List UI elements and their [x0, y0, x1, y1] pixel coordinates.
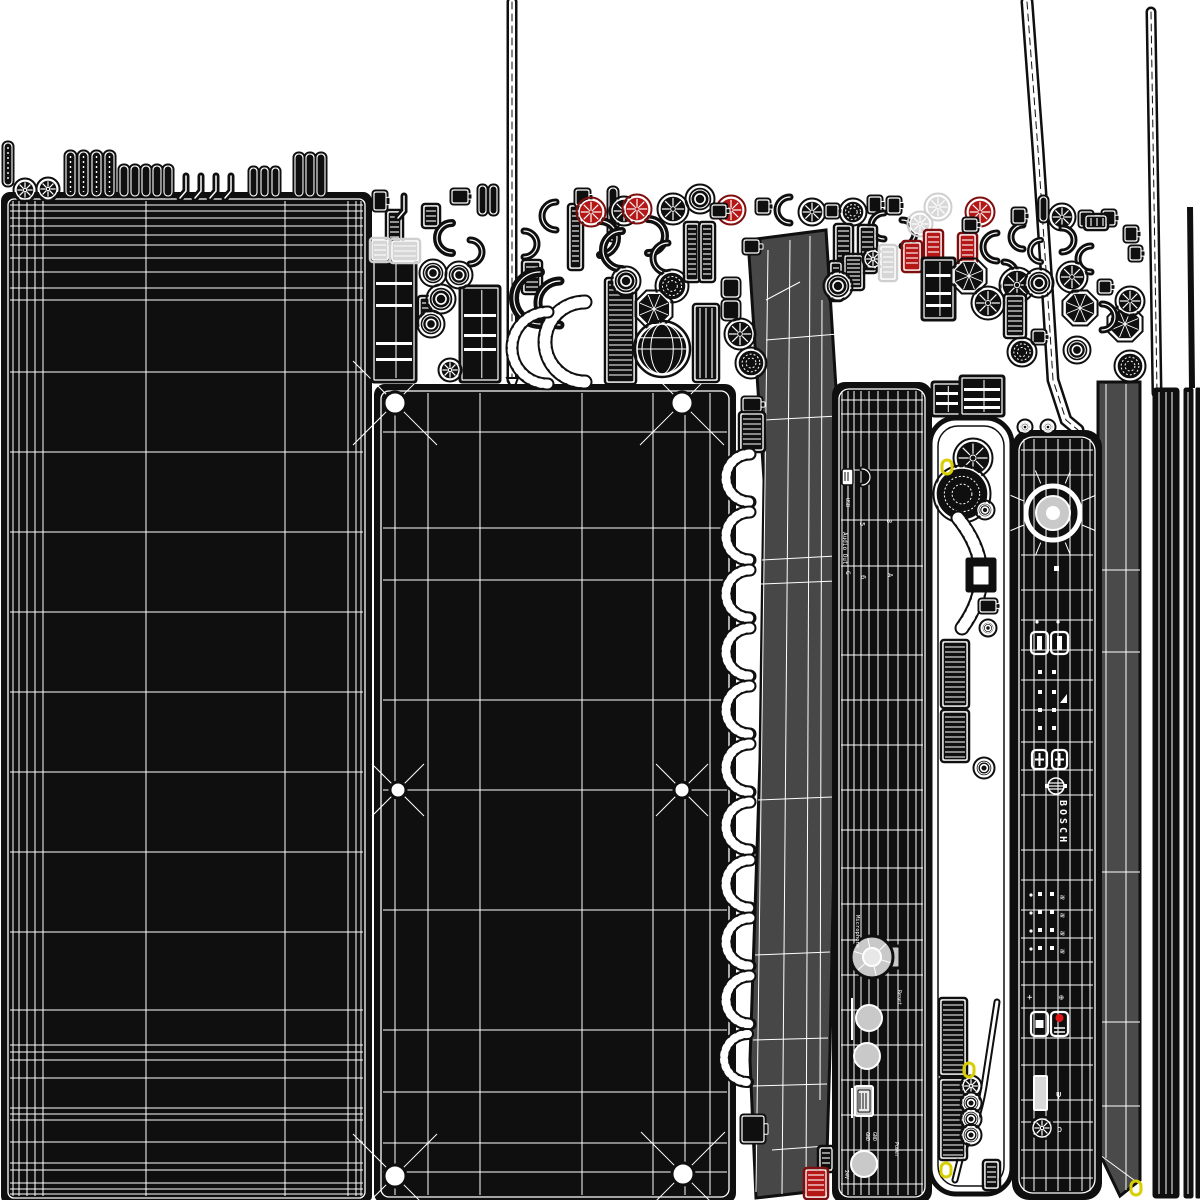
uv-curve: [542, 202, 556, 230]
icon-square: [1038, 670, 1042, 674]
uv-island: [964, 406, 1000, 409]
uv-island: [918, 222, 922, 226]
uv-strip: [261, 168, 268, 196]
uv-island: [448, 368, 451, 371]
uv-island: [1141, 251, 1145, 256]
icon-square: [1050, 892, 1054, 896]
icon-dot: [1029, 947, 1032, 950]
uv-island: [981, 765, 988, 772]
label-text: ⊕: [1059, 993, 1064, 1002]
uv-island: [926, 292, 951, 295]
uv-strip: [120, 166, 128, 196]
knob-center: [1046, 506, 1060, 520]
label-text: ≋: [1060, 893, 1065, 902]
uv-ladder: [926, 232, 941, 259]
uv-clip: [980, 600, 996, 612]
icon-square: [1052, 726, 1056, 730]
uv-clip: [1033, 331, 1045, 343]
uv-island: [671, 207, 676, 212]
uv-island: [985, 625, 990, 630]
uv-clip: [452, 190, 468, 203]
icon-dot: [1029, 929, 1032, 932]
label-text: 5: [858, 522, 866, 526]
uv-island: [464, 314, 496, 317]
uv-strip: [1040, 197, 1047, 221]
uv-island: [376, 342, 412, 345]
icon-square: [1038, 946, 1042, 950]
uv-strip: [131, 166, 139, 196]
panel-hole: [671, 392, 693, 414]
uv-island: [1060, 215, 1064, 219]
uv-island: [1034, 278, 1044, 288]
label-text: ≋: [1060, 929, 1065, 938]
uv-panel: [1098, 382, 1140, 1196]
uv-island: [1036, 1020, 1044, 1028]
uv-strip: [272, 168, 279, 196]
uv-island: [936, 205, 940, 209]
uv-ladder: [943, 712, 967, 760]
uv-strip: [295, 154, 303, 196]
panel-hole: [674, 782, 690, 798]
uv-island: [900, 203, 904, 209]
uv-island: [1128, 299, 1132, 303]
label-text: Microphone: [854, 915, 860, 948]
uv-island: [726, 512, 750, 560]
label-text: ψ: [1056, 1090, 1061, 1100]
uv-island: [982, 507, 988, 513]
label-text: BOSCH: [1057, 800, 1068, 845]
panel-hole: [390, 782, 406, 798]
uv-ladder: [686, 224, 698, 280]
wire-line: [1190, 207, 1192, 388]
display-window: [1034, 1076, 1047, 1110]
uv-strip: [164, 166, 172, 196]
uv-curve: [653, 243, 668, 273]
uv-island: [726, 628, 750, 676]
uv-island: [436, 294, 446, 304]
uv-clip: [964, 219, 977, 231]
uv-strip: [79, 152, 88, 196]
uv-strip: [479, 186, 486, 214]
uv-island: [726, 744, 750, 792]
uv-island: [726, 802, 750, 850]
uv-island: [926, 274, 951, 277]
uv-ladder: [806, 1170, 826, 1197]
uv-island: [863, 948, 881, 966]
uv-clip: [888, 198, 900, 213]
icon-square: [1038, 910, 1042, 914]
uv-clip: [757, 200, 769, 213]
panel-hole: [672, 1163, 694, 1185]
red-indicator: [1056, 1014, 1064, 1022]
uv-clip: [712, 205, 726, 217]
uv-island: [1014, 282, 1019, 287]
uv-island: [1046, 425, 1050, 429]
label-text: ≋: [1060, 911, 1065, 920]
icon-dot: [1029, 893, 1032, 896]
icon-square: [1052, 708, 1056, 712]
icon-dot: [1029, 911, 1032, 914]
uv-ladder: [820, 1148, 832, 1170]
label-text: +: [1027, 993, 1033, 1003]
jack-port: [856, 1005, 882, 1031]
uv-island: [635, 207, 639, 211]
label-text: Audio Out: [841, 532, 848, 565]
uv-island: [1064, 784, 1067, 788]
uv-island: [726, 570, 750, 618]
icon-dot: [1056, 620, 1059, 623]
uv-island: [936, 392, 958, 395]
uv-island: [428, 268, 437, 277]
uv-atlas-svg: USBAudio Out536AGMicrophoneResetGNDGNDPo…: [0, 0, 1200, 1200]
uv-island: [1070, 275, 1075, 280]
uv-ladder: [985, 1162, 998, 1188]
uv-island: [1057, 636, 1062, 650]
uv-stack: [374, 262, 414, 380]
uv-island: [810, 210, 814, 214]
uv-island: [970, 455, 976, 461]
uv-island: [726, 686, 750, 734]
uv-clip: [869, 197, 881, 212]
uv-island: [926, 304, 951, 307]
uv-rect: [1196, 388, 1200, 1198]
uv-clip: [744, 240, 759, 253]
uv-island: [769, 204, 773, 209]
uv-island: [426, 319, 435, 328]
uv-strip: [306, 154, 314, 196]
uv-island: [964, 398, 1000, 401]
icon-square: [1038, 708, 1042, 712]
uv-island: [996, 604, 1000, 609]
uv-ladder: [904, 243, 920, 270]
uv-island: [759, 244, 763, 249]
uv-island: [738, 332, 743, 337]
uv-island: [1137, 231, 1141, 237]
uv-strip: [92, 152, 101, 196]
uv-island: [726, 860, 750, 908]
uv-island: [985, 300, 990, 305]
icon-square: [1038, 690, 1042, 694]
panel-hole: [384, 392, 406, 414]
uv-island: [1025, 213, 1029, 219]
uv-island: [695, 194, 705, 204]
label-text: ≋: [1060, 947, 1065, 956]
label-text: USB: [844, 498, 850, 507]
uv-island: [46, 187, 49, 190]
uv-curve: [470, 240, 482, 264]
icon-square: [1038, 726, 1042, 730]
panel-body: [2, 193, 371, 1200]
uv-rect: [973, 566, 989, 585]
label-text: GND: [871, 1132, 877, 1141]
uv-island: [589, 210, 593, 214]
uv-island: [881, 202, 885, 208]
uv-round-square: [723, 301, 739, 319]
uv-clip: [742, 1116, 764, 1142]
uv-island: [964, 388, 1000, 391]
uv-stack: [924, 260, 953, 318]
uv-clip: [1013, 209, 1025, 223]
uv-atlas-canvas: USBAudio Out536AGMicrophoneResetGNDGNDPo…: [0, 0, 1200, 1200]
icon-square: [1050, 910, 1054, 914]
uv-island: [936, 402, 958, 405]
uv-island: [764, 1124, 768, 1134]
label-text: GND: [864, 1132, 870, 1141]
label-text: 3: [885, 519, 893, 523]
icon-square: [1052, 690, 1056, 694]
uv-clip: [374, 192, 386, 210]
uv-island: [1037, 636, 1042, 650]
label-text: G: [844, 571, 851, 575]
uv-strip: [153, 166, 161, 196]
uv-island: [761, 402, 765, 407]
uv-strip: [317, 154, 325, 196]
label-text: ɔ: [1057, 1125, 1062, 1135]
icon-square: [1052, 670, 1056, 674]
uv-island: [872, 258, 875, 261]
uv-island: [454, 270, 463, 279]
uv-strip: [66, 152, 75, 196]
uv-clip: [1130, 247, 1141, 260]
uv-island: [968, 1132, 975, 1139]
uv-ladder: [701, 224, 713, 280]
uv-island: [726, 918, 750, 966]
uv-island: [968, 1116, 975, 1123]
uv-island: [1045, 335, 1049, 340]
uv-strip: [142, 166, 150, 196]
uv-island: [1023, 425, 1027, 429]
uv-clip: [1099, 281, 1111, 293]
uv-island: [464, 348, 496, 351]
icon-square: [1050, 928, 1054, 932]
uv-stack: [934, 384, 960, 414]
label-text: 24V: [843, 1170, 849, 1179]
uv-island: [1072, 345, 1081, 354]
jack-port: [851, 1151, 877, 1177]
uv-curve: [524, 231, 537, 257]
icon-square: [1050, 946, 1054, 950]
uv-island: [978, 210, 982, 214]
icon-square: [1038, 928, 1042, 932]
uv-island: [977, 223, 981, 228]
panel-hole: [384, 1165, 406, 1187]
uv-island: [968, 1100, 975, 1107]
uv-island: [621, 276, 631, 286]
label-text: 6: [859, 575, 867, 579]
uv-island: [376, 282, 412, 285]
uv-curve: [1011, 225, 1023, 249]
uv-island: [376, 358, 412, 361]
uv-island: [1045, 784, 1048, 788]
uv-clip: [743, 398, 761, 411]
uv-curve: [437, 223, 452, 253]
uv-clip: [1125, 227, 1137, 241]
uv-island: [833, 281, 843, 291]
icon-square: [1038, 892, 1042, 896]
uv-island: [726, 454, 750, 502]
uv-island: [726, 976, 750, 1024]
icon-dot: [1035, 620, 1038, 623]
jack-port: [854, 1043, 880, 1069]
uv-island: [1115, 215, 1119, 221]
uv-island: [376, 304, 412, 307]
uv-strip: [490, 186, 497, 214]
uv-island: [23, 188, 26, 191]
uv-island: [386, 197, 390, 204]
uv-curve: [777, 197, 790, 223]
uv-strip: [105, 152, 114, 196]
uv-ladder: [941, 1000, 965, 1074]
label-text: Reset: [896, 990, 902, 1005]
uv-round-square: [723, 279, 739, 297]
icon-square: [1054, 566, 1059, 571]
uv-clip: [826, 205, 838, 217]
uv-curve: [983, 233, 997, 261]
uv-island: [726, 209, 730, 214]
uv-island: [468, 194, 472, 199]
uv-island: [970, 1085, 973, 1088]
uv-curve: [1062, 228, 1074, 252]
uv-island: [1040, 1126, 1043, 1129]
panel-body: [1013, 431, 1101, 1199]
label-text: Power: [893, 1142, 899, 1157]
uv-strip: [250, 168, 257, 196]
uv-island: [464, 334, 496, 337]
uv-island: [1111, 285, 1115, 290]
